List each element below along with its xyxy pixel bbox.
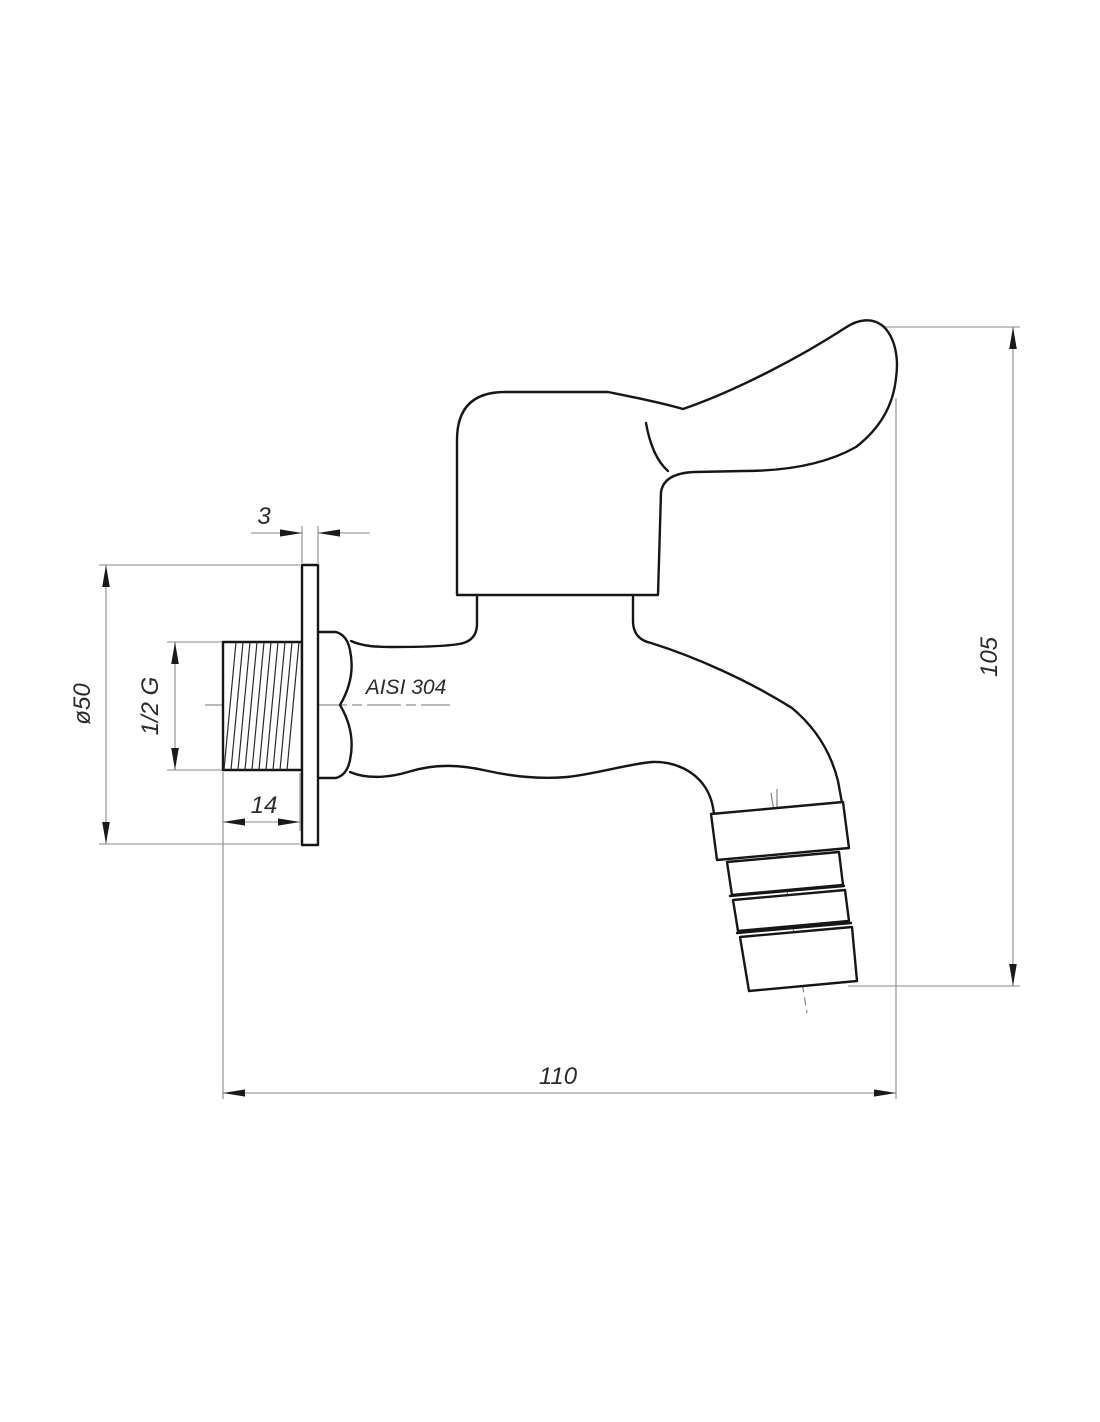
tap-body [223, 320, 897, 991]
arrow-down-icon [1009, 964, 1017, 986]
arrow-left-icon [318, 529, 340, 536]
dim-thread-size: 1/2 G [137, 642, 225, 770]
valve-body-and-lever-handle [457, 320, 897, 595]
dim-label-flange-diameter: ø50 [69, 683, 96, 725]
dim-label-overall-length: 110 [539, 1063, 578, 1090]
arrow-left-icon [223, 1089, 245, 1096]
barb-collar [711, 802, 849, 860]
material-label: AISI 304 [364, 676, 447, 699]
dim-label-thread-size: 1/2 G [137, 677, 164, 736]
arrow-up-icon [171, 642, 179, 664]
technical-drawing-canvas: ø50 1/2 G 3 14 [0, 0, 1100, 1422]
dim-label-flange-thickness: 3 [257, 503, 271, 530]
wall-flange-plate [302, 565, 318, 845]
dim-label-overall-height: 105 [976, 636, 1003, 677]
arrow-down-icon [102, 822, 110, 844]
arrow-right-icon [874, 1089, 896, 1096]
inlet-neck-top [351, 597, 477, 647]
threaded-inlet [223, 642, 302, 770]
spout-outer-edge [633, 597, 842, 803]
dim-label-thread-length: 14 [251, 792, 278, 819]
arrow-up-icon [102, 565, 110, 587]
arrow-right-icon [278, 818, 300, 825]
hose-barb-connector [711, 802, 857, 991]
arrow-left-icon [223, 818, 245, 825]
arrow-down-icon [171, 748, 179, 770]
drawing-sheet: ø50 1/2 G 3 14 [0, 0, 1100, 1422]
arrow-right-icon [280, 529, 302, 536]
barb-tip [740, 927, 857, 991]
dim-thread-length: 14 [223, 773, 300, 831]
body-bottom-and-spout-inner-edge [350, 762, 714, 814]
dim-flange-thickness: 3 [251, 503, 370, 563]
arrow-up-icon [1009, 327, 1017, 349]
